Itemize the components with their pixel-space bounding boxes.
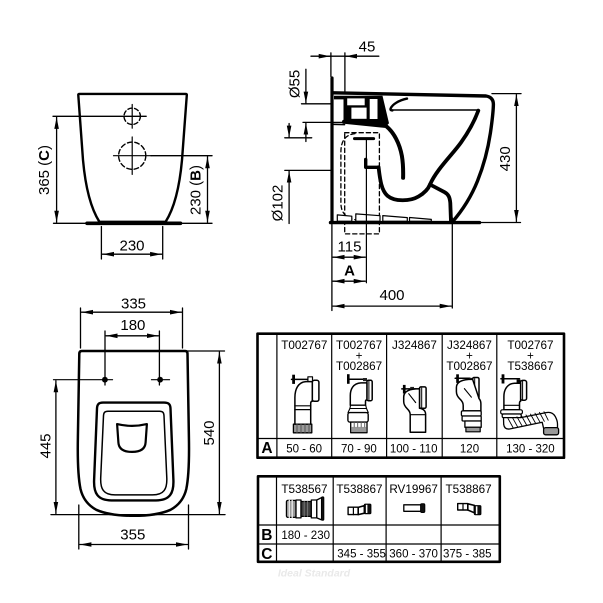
svg-text:T538567: T538567 <box>281 483 327 496</box>
svg-text:400: 400 <box>379 287 404 304</box>
svg-text:RV19967: RV19967 <box>389 483 438 496</box>
svg-text:430: 430 <box>497 146 514 171</box>
svg-text:T002767: T002767 <box>281 339 327 352</box>
svg-text:540: 540 <box>201 420 218 445</box>
svg-text:45: 45 <box>359 39 376 56</box>
svg-text:Ø102: Ø102 <box>270 185 287 222</box>
svg-text:115: 115 <box>338 238 362 255</box>
svg-text:T538867: T538867 <box>336 483 382 496</box>
svg-text:365 (C): 365 (C) <box>36 145 53 195</box>
svg-text:T538667: T538667 <box>507 360 553 373</box>
svg-text:345 - 355: 345 - 355 <box>337 548 386 560</box>
svg-text:T002867: T002867 <box>336 360 382 373</box>
svg-text:230 (B): 230 (B) <box>188 165 205 215</box>
svg-text:445: 445 <box>38 433 55 458</box>
svg-text:T538867: T538867 <box>446 483 492 496</box>
svg-text:C: C <box>261 546 272 563</box>
svg-text:A: A <box>344 263 355 280</box>
svg-text:T002867: T002867 <box>446 360 492 373</box>
svg-text:230: 230 <box>119 238 144 255</box>
svg-text:Ø55: Ø55 <box>287 70 304 98</box>
svg-text:B: B <box>261 527 272 544</box>
svg-text:A: A <box>261 440 272 457</box>
svg-text:355: 355 <box>120 527 145 544</box>
svg-text:180: 180 <box>120 317 145 334</box>
svg-text:375 - 385: 375 - 385 <box>443 548 492 560</box>
svg-text:120: 120 <box>460 443 479 455</box>
svg-text:70 - 90: 70 - 90 <box>341 443 377 455</box>
svg-text:335: 335 <box>121 295 146 312</box>
svg-text:Ideal Standard: Ideal Standard <box>278 568 351 580</box>
svg-text:130 - 320: 130 - 320 <box>506 443 555 455</box>
svg-text:360 - 370: 360 - 370 <box>389 548 438 560</box>
svg-text:180 - 230: 180 - 230 <box>281 530 330 542</box>
svg-text:100 - 110: 100 - 110 <box>390 443 438 455</box>
svg-text:J324867: J324867 <box>392 339 437 352</box>
svg-text:50 - 60: 50 - 60 <box>286 443 322 455</box>
